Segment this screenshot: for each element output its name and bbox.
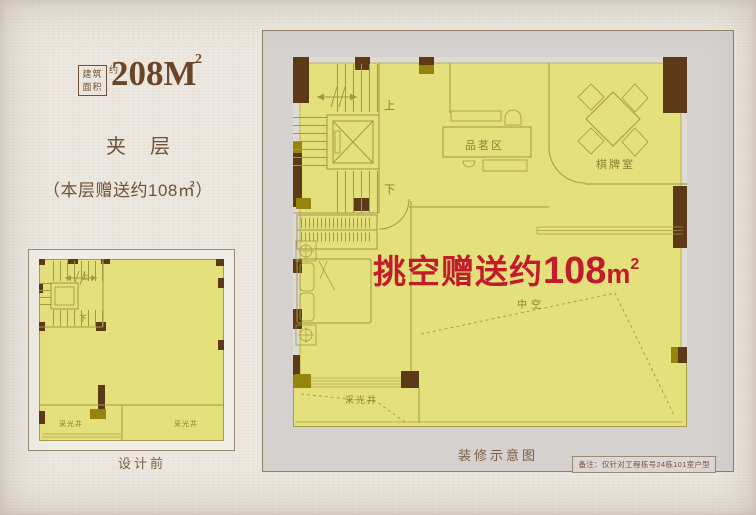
area-label-row1: 建筑	[82, 69, 102, 79]
before-down-label: 下	[79, 313, 87, 324]
void-bonus-highlight: 挑空赠送约108m2	[373, 245, 639, 293]
chess-room-label: 棋牌室	[596, 156, 635, 172]
highlight-unit: m	[606, 259, 630, 289]
disclaimer-note: 备注：仅针对工程栋号24栋101室户型	[572, 456, 716, 473]
before-up-label: 上	[81, 271, 89, 282]
elevator	[327, 115, 379, 169]
highlight-value: 108	[543, 250, 606, 292]
mezzanine-title: 夹层	[106, 130, 194, 159]
after-up-label: 上	[384, 97, 395, 113]
void-label: 中空	[517, 296, 545, 311]
highlight-superscript: 2	[630, 256, 639, 273]
bonus-subtitle: （本层赠送约108㎡）	[43, 176, 213, 201]
tea-area-label: 品茗区	[465, 137, 504, 153]
page-background: 建筑 面积 约 208M 2 夹层 （本层赠送约108㎡）	[0, 0, 756, 515]
area-value-superscript: 2	[195, 52, 202, 68]
before-light-well-right-label: 采光井	[174, 419, 198, 429]
after-floorplan-linework	[293, 57, 687, 427]
highlight-text: 挑空赠送约	[373, 253, 543, 290]
after-floorplan-panel: 上 下 品茗区 棋牌室 中空 采光井 挑空赠送约108m2 装修示意图 备注：仅…	[262, 30, 734, 472]
light-well-label: 采光井	[345, 393, 378, 406]
before-plan-caption: 设计前	[118, 453, 166, 472]
before-floorplan: 上 下 采光井 采光井	[28, 249, 235, 451]
area-value: 208M	[111, 54, 197, 94]
elevator	[51, 283, 78, 309]
after-down-label: 下	[384, 181, 395, 197]
before-floorplan-linework	[39, 259, 224, 441]
before-light-well-left-label: 采光井	[59, 419, 83, 429]
floor-area	[294, 58, 687, 427]
area-label-row2: 面积	[82, 82, 102, 92]
area-label-box: 建筑 面积	[78, 65, 107, 96]
